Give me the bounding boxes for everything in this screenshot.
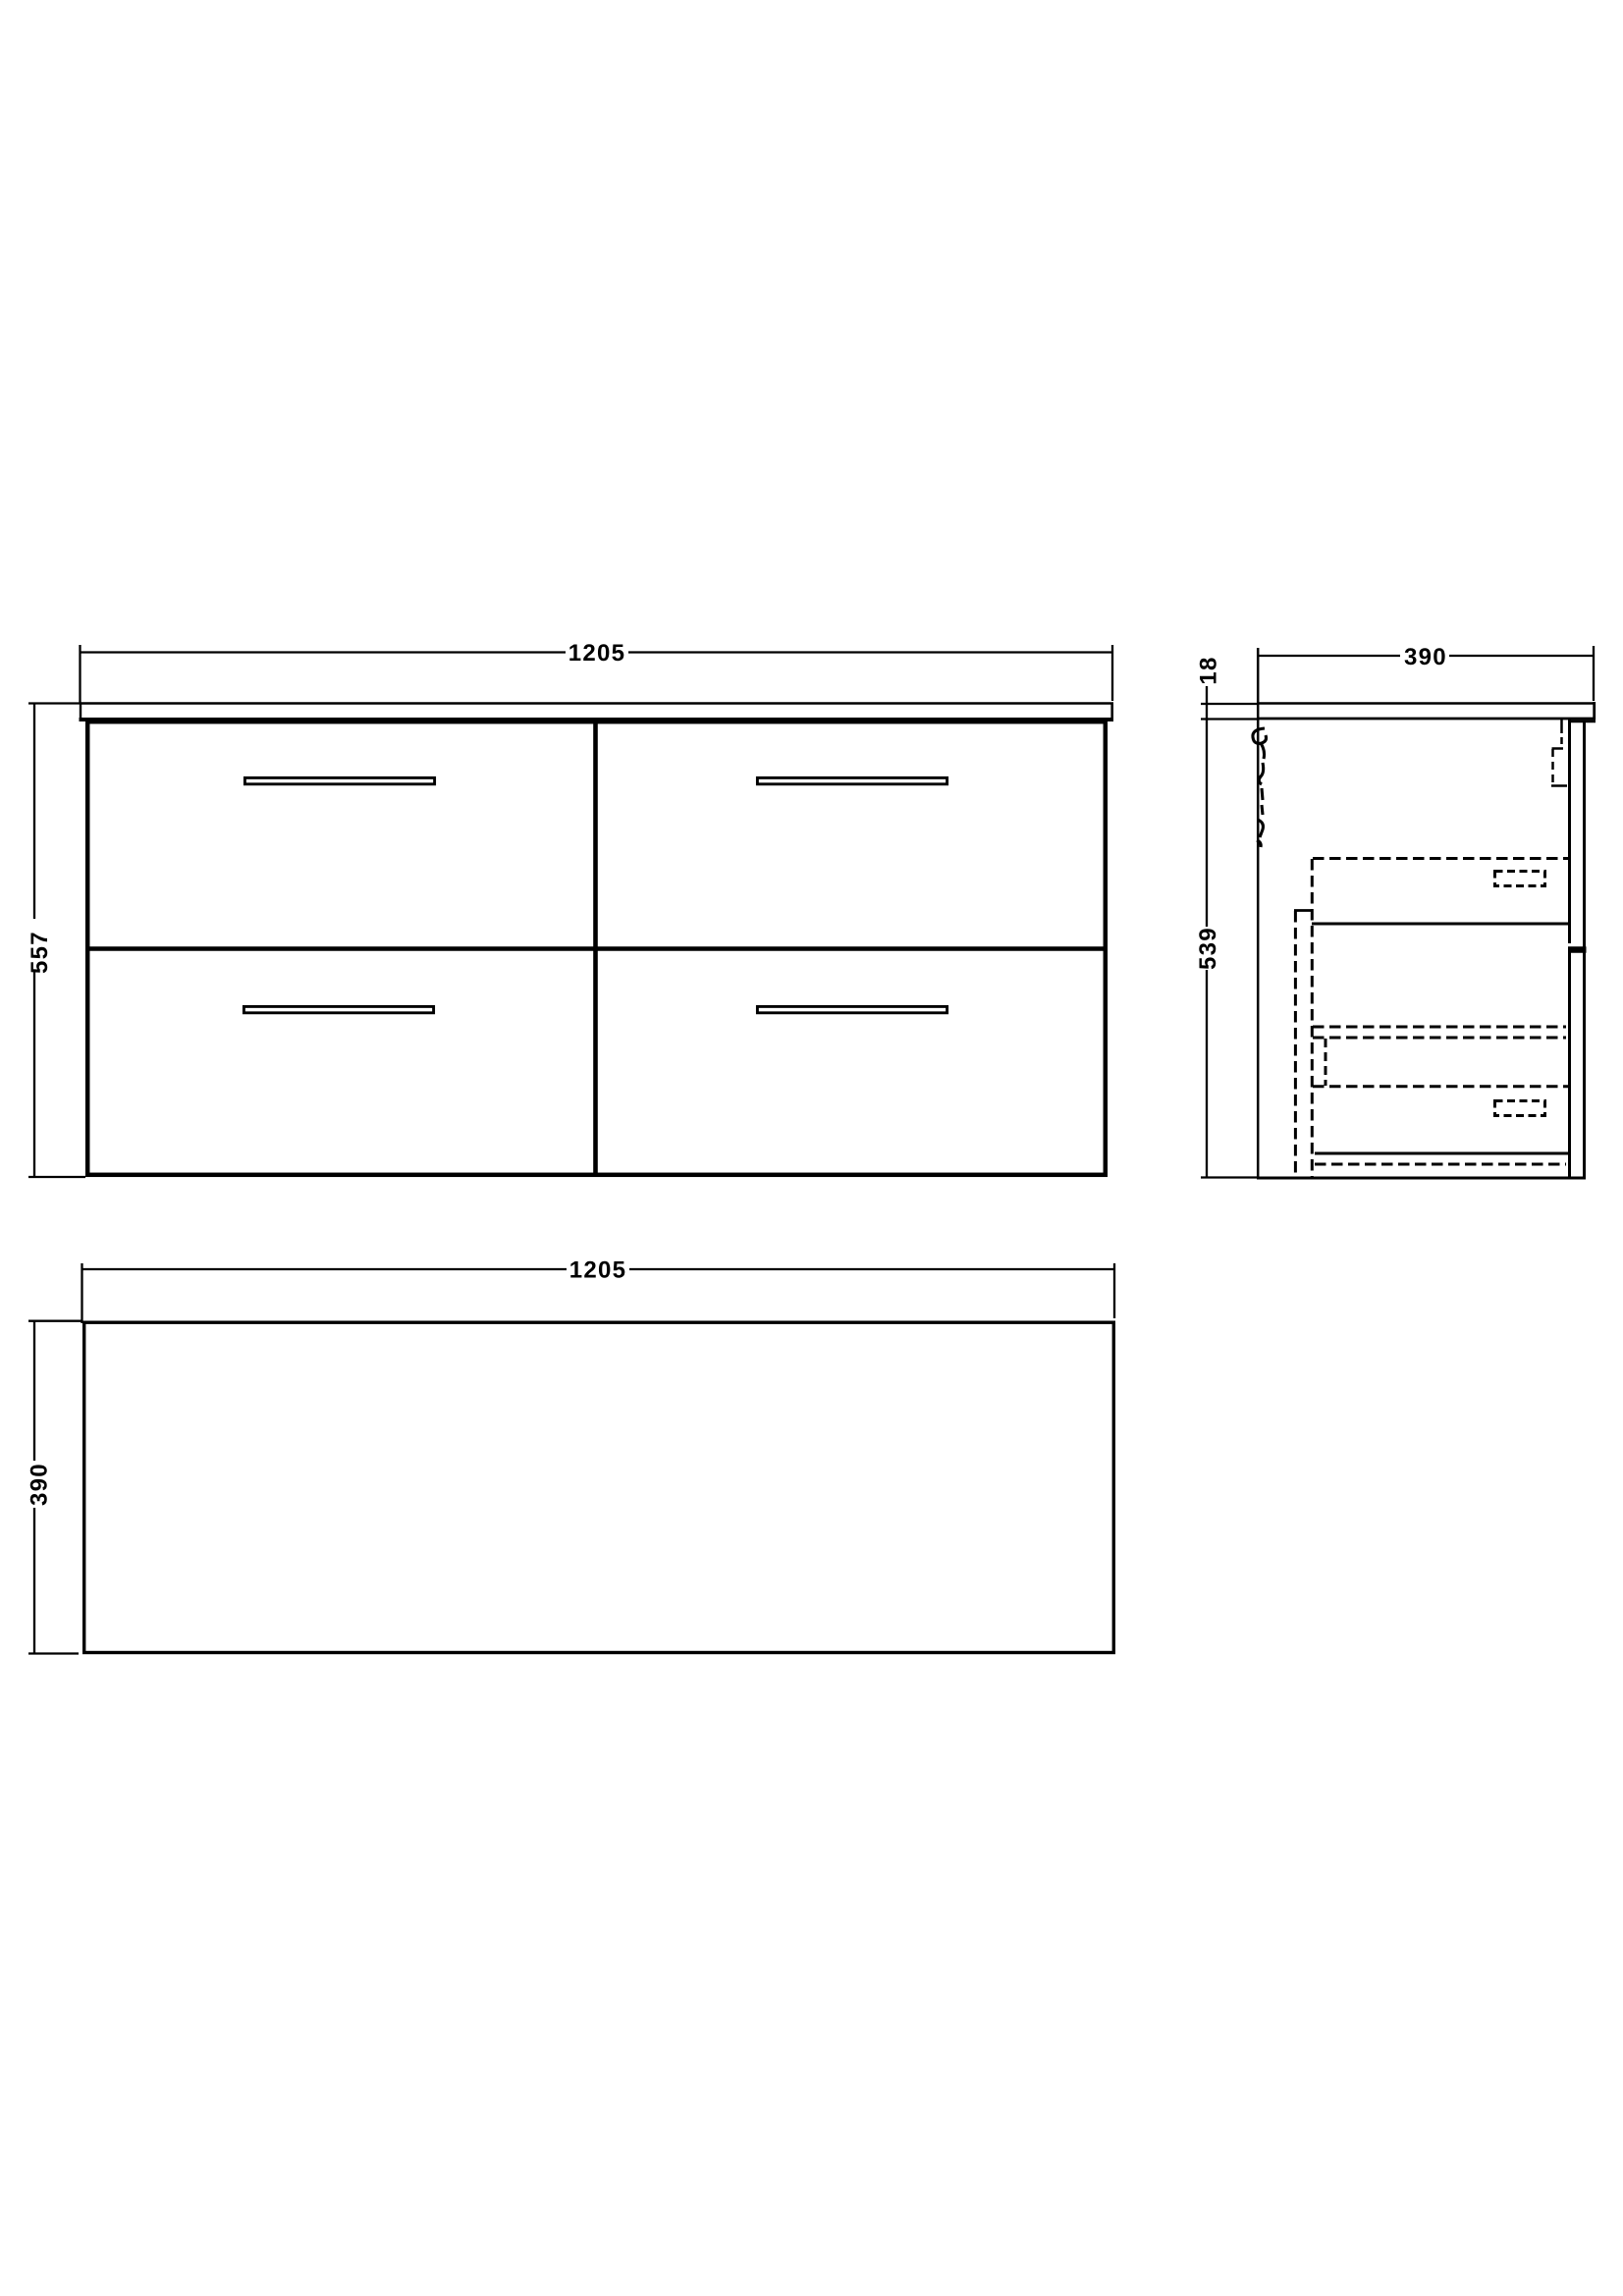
- svg-text:557: 557: [27, 931, 53, 974]
- svg-text:1205: 1205: [568, 640, 626, 667]
- svg-text:390: 390: [1404, 644, 1447, 670]
- svg-text:539: 539: [1195, 927, 1221, 970]
- svg-text:390: 390: [26, 1463, 52, 1506]
- svg-text:18: 18: [1195, 656, 1221, 684]
- svg-text:1205: 1205: [569, 1256, 627, 1283]
